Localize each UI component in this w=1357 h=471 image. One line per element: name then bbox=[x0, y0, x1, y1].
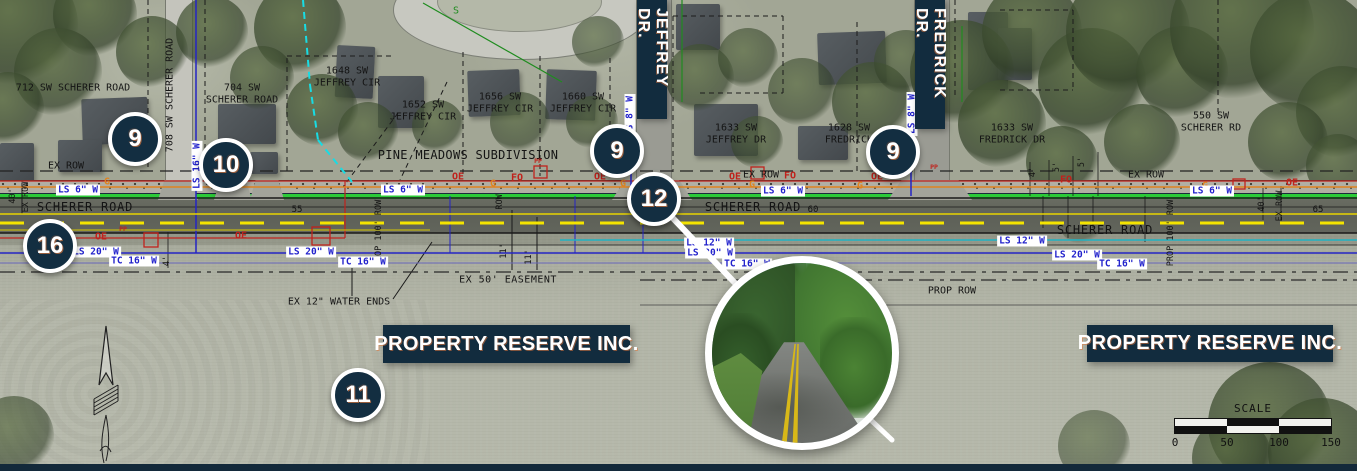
callout-badge-10[interactable]: 10 bbox=[199, 138, 253, 192]
callout-badge-number: 11 bbox=[345, 381, 370, 409]
sheet-border-bar bbox=[0, 464, 1357, 471]
callout-badge-number: 12 bbox=[641, 185, 668, 213]
callout-badge-9[interactable]: 9 bbox=[866, 125, 920, 179]
callout-badge-number: 9 bbox=[610, 137, 623, 165]
callout-badge-number: 10 bbox=[213, 151, 240, 179]
callout-badge-9[interactable]: 9 bbox=[590, 124, 644, 178]
street-photo-inset[interactable] bbox=[705, 256, 899, 450]
callout-badge-9[interactable]: 9 bbox=[108, 112, 162, 166]
callout-leader-lines bbox=[0, 0, 1357, 471]
callout-badge-number: 9 bbox=[886, 138, 899, 166]
callout-badge-12[interactable]: 12 bbox=[627, 172, 681, 226]
callout-badge-number: 9 bbox=[128, 125, 141, 153]
callout-badge-16[interactable]: 16 bbox=[23, 219, 77, 273]
callout-badge-11[interactable]: 11 bbox=[331, 368, 385, 422]
plan-sheet-map: 712 SW SCHERER ROAD708 SW SCHERER ROAD70… bbox=[0, 0, 1357, 471]
callout-badge-number: 16 bbox=[37, 232, 64, 260]
